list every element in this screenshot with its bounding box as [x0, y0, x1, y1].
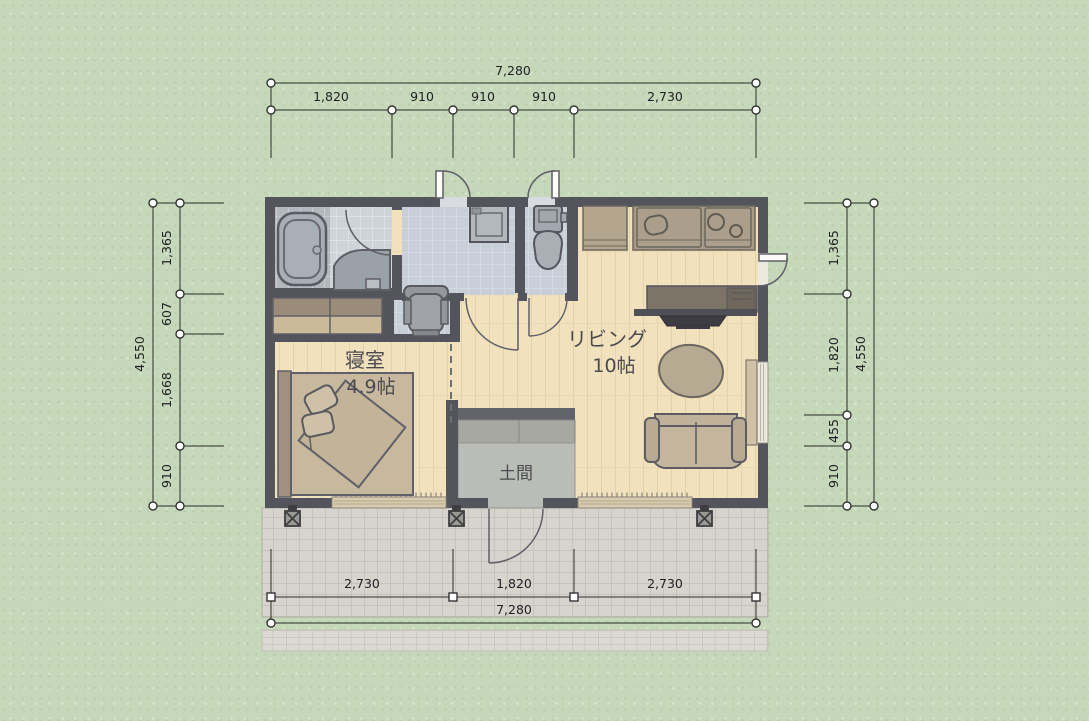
bedroom-label: 寝室 [345, 348, 385, 372]
stove-icon [705, 208, 751, 247]
dim-right-seg: 455 [826, 419, 841, 443]
entry-door-north-right[interactable] [528, 171, 559, 198]
office-chair-icon[interactable] [404, 286, 448, 336]
pillow [301, 410, 335, 438]
dim-top-seg: 1,820 [313, 89, 349, 104]
living-label: リビング [567, 327, 647, 351]
dim-right-seg: 910 [826, 464, 841, 488]
living-size-label: 10帖 [592, 355, 635, 377]
dim-bottom-seg: 2,730 [647, 576, 683, 591]
refrigerator-icon[interactable] [583, 206, 627, 250]
dim-top-seg: 910 [410, 89, 434, 104]
dim-left-total: 4,550 [132, 336, 147, 372]
washbasin-icon[interactable] [334, 250, 390, 290]
living-east-window[interactable] [746, 360, 768, 445]
kitchen-counter[interactable] [633, 206, 755, 250]
doma-step-edge [458, 408, 575, 420]
bedroom-size-label: 4.9帖 [346, 376, 395, 398]
dim-right-seg: 1,365 [826, 230, 841, 266]
door-opening [440, 197, 467, 207]
apron-strip[interactable] [262, 630, 768, 651]
dim-top-seg: 2,730 [647, 89, 683, 104]
dim-right-seg: 1,820 [826, 337, 841, 373]
closet-icon[interactable] [273, 298, 382, 334]
dim-left-seg: 607 [159, 302, 174, 326]
entry-door-north-left[interactable] [436, 171, 470, 198]
dim-left-seg: 1,668 [159, 372, 174, 408]
dim-top-seg: 910 [532, 89, 556, 104]
dim-bottom-seg: 1,820 [496, 576, 532, 591]
wood-deck[interactable] [262, 508, 768, 617]
dim-top-total: 7,280 [495, 63, 531, 78]
dim-bottom-total: 7,280 [496, 602, 532, 617]
dim-bottom-seg: 2,730 [344, 576, 380, 591]
dim-left-seg: 1,365 [159, 230, 174, 266]
doma-label: 土間 [499, 464, 533, 484]
sofa-icon[interactable] [645, 414, 746, 468]
dim-top-seg: 910 [471, 89, 495, 104]
bathtub-icon[interactable] [278, 213, 326, 285]
washing-machine-icon[interactable] [470, 206, 508, 242]
dim-right-total: 4,550 [853, 336, 868, 372]
kitchen-sink-icon [637, 208, 701, 247]
doma-step-tread [458, 420, 575, 443]
window-sill-counter[interactable] [746, 360, 757, 445]
dim-left-seg: 910 [159, 464, 174, 488]
floor-plan-canvas: 7,280 1,820 910 910 910 2,730 2,730 1,82… [0, 0, 1089, 721]
